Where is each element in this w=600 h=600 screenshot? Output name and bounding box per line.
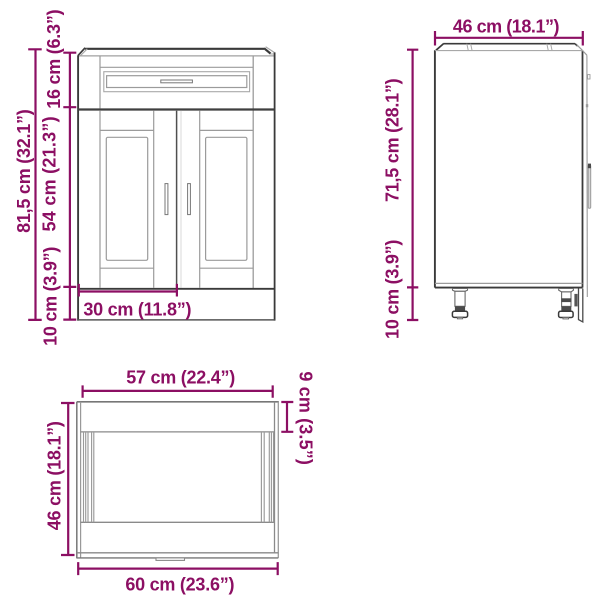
svg-text:60 cm (23.6”): 60 cm (23.6”) [125,575,234,595]
svg-text:81,5 cm (32.1”): 81,5 cm (32.1”) [14,109,34,233]
svg-text:10 cm (3.9”): 10 cm (3.9”) [40,247,60,346]
svg-text:9 cm (3.5”): 9 cm (3.5”) [296,371,316,465]
svg-text:46 cm (18.1”): 46 cm (18.1”) [453,16,560,36]
svg-text:71,5 cm (28.1”): 71,5 cm (28.1”) [383,78,403,202]
svg-text:10 cm (3.9”): 10 cm (3.9”) [383,240,403,339]
svg-text:16 cm (6.3”): 16 cm (6.3”) [44,9,64,108]
svg-text:30 cm (11.8”): 30 cm (11.8”) [83,299,191,319]
svg-text:46 cm (18.1”): 46 cm (18.1”) [45,421,65,530]
svg-text:54 cm (21.3”): 54 cm (21.3”) [39,116,59,231]
svg-text:57 cm (22.4”): 57 cm (22.4”) [126,368,235,388]
